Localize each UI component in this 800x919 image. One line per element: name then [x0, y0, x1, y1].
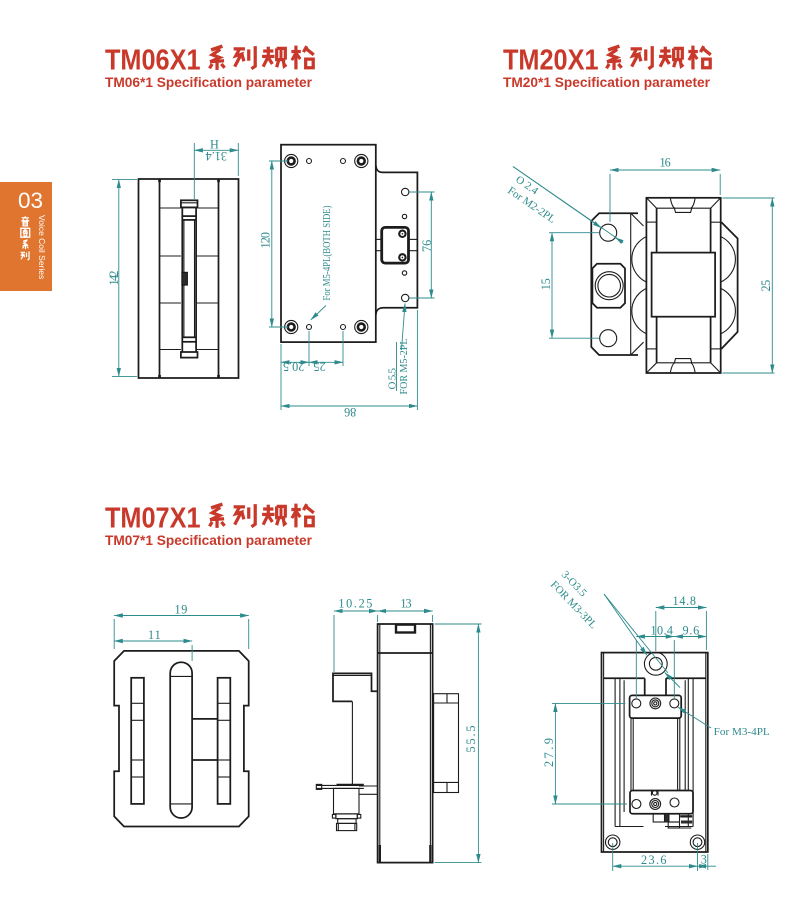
svg-text:86: 86: [344, 405, 356, 419]
svg-text:TM06X1: TM06X1: [105, 45, 201, 77]
svg-text:15: 15: [539, 278, 553, 290]
svg-text:03: 03: [18, 188, 43, 213]
svg-text:27.9: 27.9: [542, 738, 556, 767]
svg-text:31.4: 31.4: [206, 149, 227, 163]
svg-text:TM06*1 Specification parameter: TM06*1 Specification parameter: [105, 75, 312, 91]
svg-text:10.25: 10.25: [338, 597, 372, 611]
svg-text:11: 11: [148, 628, 161, 642]
svg-text:25: 25: [759, 280, 773, 292]
svg-text:10.4: 10.4: [651, 624, 674, 638]
svg-text:Voice Coil Series: Voice Coil Series: [37, 215, 47, 279]
svg-text:TM20X1: TM20X1: [503, 45, 599, 77]
svg-text:23.6: 23.6: [641, 853, 667, 867]
svg-text:3: 3: [701, 853, 707, 867]
svg-text:120: 120: [258, 232, 272, 249]
svg-text:9.6: 9.6: [683, 624, 700, 638]
svg-text:TM07X1: TM07X1: [105, 503, 201, 535]
svg-text:TM20*1 Specification parameter: TM20*1 Specification parameter: [503, 75, 710, 91]
svg-text:For M5-4PL(BOTH SIDE): For M5-4PL(BOTH SIDE): [321, 205, 333, 300]
svg-text:13: 13: [400, 597, 411, 611]
svg-text:14.8: 14.8: [673, 594, 697, 608]
svg-text:For M3-4PL: For M3-4PL: [714, 726, 770, 738]
svg-text:FOR M5-2PL: FOR M5-2PL: [398, 338, 410, 394]
svg-text:25: 25: [313, 359, 325, 373]
svg-text:55.5: 55.5: [464, 726, 478, 753]
svg-text:19: 19: [175, 603, 188, 617]
svg-text:TM07*1 Specification parameter: TM07*1 Specification parameter: [105, 533, 312, 549]
svg-text:142: 142: [107, 271, 121, 286]
svg-text:20.5: 20.5: [283, 359, 304, 373]
svg-text:16: 16: [660, 155, 671, 169]
svg-text:76: 76: [420, 240, 434, 252]
